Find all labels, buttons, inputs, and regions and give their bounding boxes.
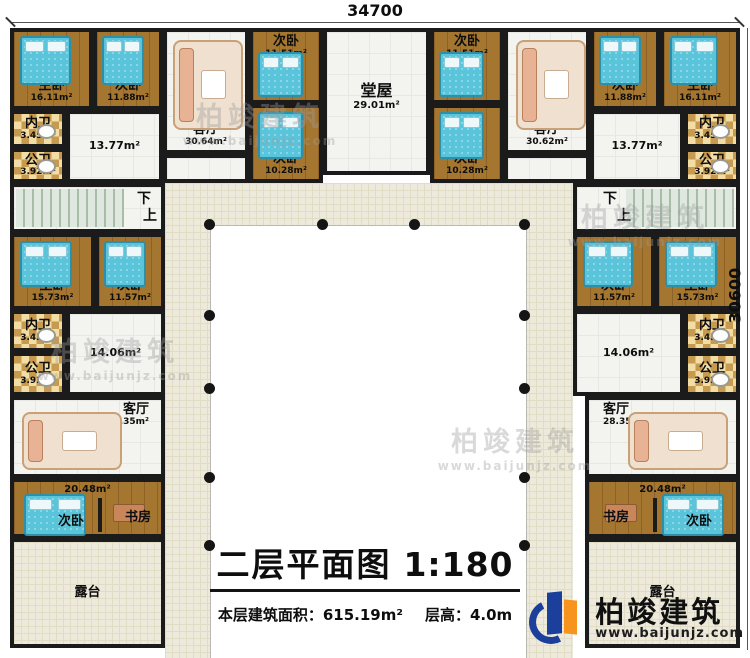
room-bedroom-left-wing: 次卧 11.57m²	[95, 233, 165, 310]
bed-icon	[102, 36, 144, 84]
room-bedroom-right-wing: 次卧 11.57m²	[573, 233, 655, 310]
room-public-bath-right-wing: 公卫 3.92m²	[684, 352, 740, 396]
room-suite-right-wing: 20.48m² 书房 次卧	[585, 478, 740, 538]
floor-height-label: 层高：	[425, 606, 470, 624]
bed-icon	[20, 36, 71, 84]
toilet-icon	[711, 159, 730, 174]
plan-scale: 1:180	[403, 545, 513, 584]
logo-name: 柏竣建筑	[595, 597, 744, 627]
floor-plan: 34700 30600 主卧 16.11m² 次卧 11.88m² 客厅 30.…	[0, 0, 750, 658]
column-dot	[204, 472, 215, 483]
logo-building-icon	[529, 588, 587, 650]
column-dot	[519, 472, 530, 483]
stair-up-label: 上	[143, 205, 157, 225]
bed-icon	[583, 241, 633, 286]
column-dot	[204, 310, 215, 321]
sofa-icon	[173, 40, 243, 130]
passage-top-left	[163, 154, 249, 183]
hallway-left-wing: 14.06m²	[66, 310, 165, 396]
room-area: 29.01m²	[353, 100, 399, 112]
room-inner-bath-top-right: 内卫 3.45m²	[684, 110, 740, 148]
room-area: 15.73m²	[32, 293, 74, 303]
hallway-area: 13.77m²	[89, 140, 140, 153]
bed-icon	[439, 52, 484, 97]
hallway-area: 14.06m²	[603, 347, 654, 360]
hallway-top-left: 13.77m²	[66, 110, 163, 183]
room-suite-left-wing: 20.48m² 次卧 书房	[10, 478, 165, 538]
stairs-icon	[16, 189, 124, 227]
room-area: 16.11m²	[679, 93, 721, 103]
column-dot	[519, 383, 530, 394]
dimension-right: 30600	[726, 250, 745, 342]
dimension-right-line	[747, 28, 748, 650]
room-bedroom2-top-left: 次卧 11.88m²	[93, 28, 163, 110]
room-inner-bath-top-left: 内卫 3.45m²	[10, 110, 66, 148]
bed-icon	[258, 112, 303, 159]
hallway-area: 13.77m²	[611, 140, 662, 153]
floor-height-value: 4.0m	[470, 606, 512, 624]
toilet-icon	[711, 124, 730, 139]
room-label: 露台	[74, 586, 100, 600]
room-main-hall: 堂屋 29.01m²	[323, 28, 430, 175]
room-bedroom4-top-left: 次卧 10.28m²	[249, 104, 323, 183]
stairs-icon	[626, 189, 734, 227]
room-area: 15.73m²	[677, 293, 719, 303]
bed-icon	[104, 241, 146, 286]
room-area: 16.11m²	[31, 93, 73, 103]
sofa-icon	[628, 412, 728, 470]
room-master-bedroom-left-wing: 主卧 15.73m²	[10, 233, 95, 310]
sofa-icon	[516, 40, 586, 130]
stair-down-label: 下	[603, 188, 617, 208]
room-living-left-wing: 客厅 28.35m²	[10, 396, 165, 478]
hallway-right-wing: 14.06m²	[573, 310, 684, 396]
room-area: 10.28m²	[265, 166, 307, 176]
title-underline	[210, 589, 520, 592]
room-master-bedroom-top-right: 主卧 16.11m²	[660, 28, 740, 110]
room-area: 11.57m²	[109, 293, 151, 303]
room-bedroom3-top-left: 次卧 11.51m²	[249, 28, 323, 104]
room-inner-bath-left-wing: 内卫 3.45m²	[10, 310, 66, 352]
room-label: 次卧	[273, 35, 299, 49]
column-dot	[317, 219, 328, 230]
room-living-top-left: 客厅 30.64m²	[163, 28, 249, 154]
room-label: 客厅	[603, 403, 629, 417]
room-bedroom3-top-right: 次卧 11.51m²	[430, 28, 504, 104]
column-dot	[519, 310, 530, 321]
room-area: 30.62m²	[526, 137, 568, 147]
hallway-area: 14.06m²	[90, 347, 141, 360]
room-area: 11.57m²	[593, 293, 635, 303]
room-area: 10.28m²	[446, 166, 488, 176]
column-dot	[409, 219, 420, 230]
toilet-icon	[37, 372, 56, 387]
room-label: 次卧	[686, 510, 712, 529]
terrace-left: 露台	[10, 538, 165, 648]
column-dot	[519, 219, 530, 230]
column-dot	[204, 383, 215, 394]
room-public-bath-top-left: 公卫 3.92m²	[10, 148, 66, 183]
bed-icon	[665, 241, 717, 286]
area-label: 本层建筑面积：	[218, 606, 323, 624]
room-master-bedroom-top-left: 主卧 16.11m²	[10, 28, 93, 110]
room-area: 11.88m²	[107, 93, 149, 103]
plan-title: 二层平面图1:180	[192, 538, 538, 592]
courtyard	[210, 225, 527, 658]
logo-url: www.baijunjz.com	[595, 627, 744, 641]
room-label: 书房	[125, 506, 151, 525]
plan-subtitle: 本层建筑面积：615.19m²层高：4.0m	[170, 604, 560, 625]
stair-up-label: 上	[617, 205, 631, 225]
toilet-icon	[37, 124, 56, 139]
room-label: 次卧	[58, 510, 84, 529]
room-area: 11.88m²	[604, 93, 646, 103]
plan-title-text: 二层平面图	[216, 545, 391, 584]
room-bedroom2-top-right: 次卧 11.88m²	[590, 28, 660, 110]
sofa-icon	[22, 412, 122, 470]
company-logo: 柏竣建筑 www.baijunjz.com	[529, 588, 744, 650]
room-label: 书房	[603, 506, 629, 525]
hallway-top-right: 13.77m²	[590, 110, 684, 183]
column-dot	[204, 219, 215, 230]
toilet-icon	[37, 159, 56, 174]
wall-divider	[653, 498, 657, 532]
room-bedroom4-top-right: 次卧 10.28m²	[430, 104, 504, 183]
dimension-top-line	[10, 22, 740, 23]
bed-icon	[439, 112, 484, 159]
wall-divider	[98, 498, 102, 532]
bed-icon	[599, 36, 641, 84]
room-living-top-right: 客厅 30.62m²	[504, 28, 590, 154]
bed-icon	[670, 36, 719, 84]
room-label: 客厅	[123, 403, 149, 417]
toilet-icon	[37, 328, 56, 343]
area-value: 615.19m²	[323, 606, 403, 624]
room-public-bath-top-right: 公卫 3.92m²	[684, 148, 740, 183]
stairwell-right: 下 上	[573, 183, 740, 233]
toilet-icon	[711, 372, 730, 387]
stairwell-left: 下 上	[10, 183, 165, 233]
room-label: 堂屋	[360, 83, 392, 100]
dimension-top: 34700	[0, 1, 750, 20]
room-living-right-wing: 客厅 28.35m²	[585, 396, 740, 478]
room-public-bath-left-wing: 公卫 3.92m²	[10, 352, 66, 396]
bed-icon	[20, 241, 72, 286]
room-label: 次卧	[454, 35, 480, 49]
passage-top-right	[504, 154, 590, 183]
room-area: 30.64m²	[185, 137, 227, 147]
bed-icon	[258, 52, 303, 97]
